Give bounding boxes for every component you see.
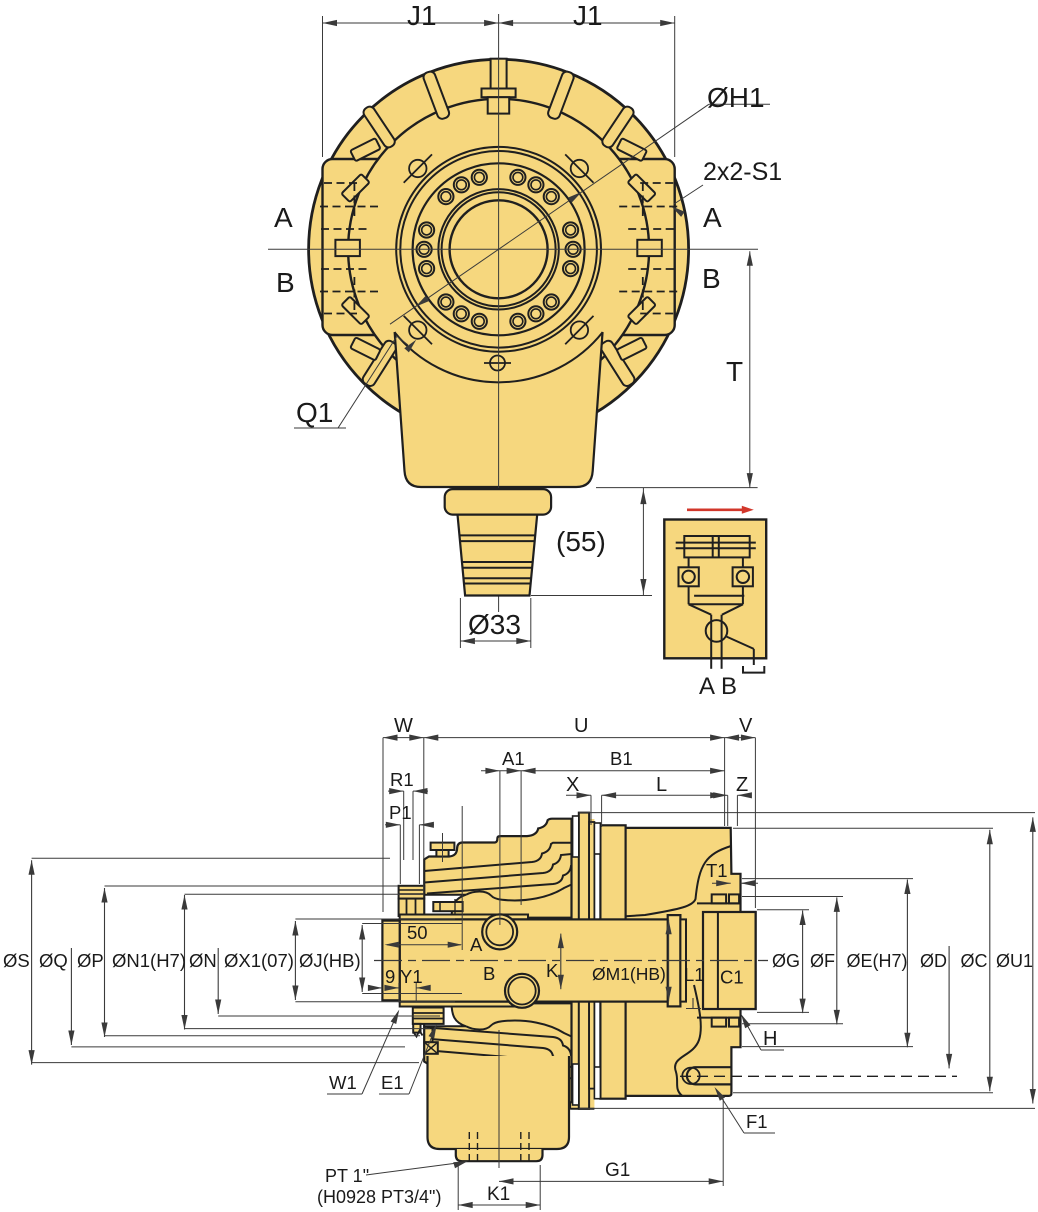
svg-text:ØN: ØN — [189, 950, 217, 971]
svg-text:H: H — [763, 1028, 777, 1050]
svg-text:B: B — [483, 963, 495, 984]
svg-text:ØX1(07): ØX1(07) — [224, 950, 294, 971]
svg-text:W: W — [394, 715, 413, 737]
svg-text:B: B — [276, 267, 295, 298]
svg-text:G1: G1 — [605, 1160, 630, 1181]
svg-text:U: U — [574, 715, 588, 737]
svg-text:Z: Z — [736, 774, 748, 796]
svg-text:P1: P1 — [389, 802, 412, 823]
svg-text:K1: K1 — [487, 1184, 510, 1205]
svg-text:L: L — [656, 774, 667, 796]
svg-text:A: A — [703, 202, 722, 233]
svg-text:W1: W1 — [329, 1072, 357, 1093]
svg-text:Y1: Y1 — [400, 966, 423, 987]
svg-text:E1: E1 — [381, 1072, 404, 1093]
svg-text:ØS: ØS — [3, 950, 30, 971]
svg-text:J1: J1 — [407, 0, 437, 31]
svg-text:K: K — [546, 960, 559, 981]
svg-text:ØP: ØP — [77, 950, 104, 971]
svg-text:ØH1: ØH1 — [707, 82, 765, 113]
svg-text:9: 9 — [385, 966, 395, 987]
svg-text:ØF: ØF — [810, 951, 835, 971]
svg-text:ØU1: ØU1 — [996, 951, 1033, 971]
svg-text:B1: B1 — [610, 748, 633, 769]
svg-text:ØE(H7): ØE(H7) — [847, 951, 908, 971]
svg-text:A1: A1 — [502, 748, 525, 769]
svg-text:ØD: ØD — [920, 951, 947, 971]
svg-text:X: X — [566, 774, 579, 796]
svg-text:ØJ(HB): ØJ(HB) — [299, 950, 361, 971]
svg-text:T1: T1 — [706, 860, 728, 881]
svg-text:(55): (55) — [556, 526, 606, 557]
svg-text:L1: L1 — [684, 964, 705, 985]
svg-text:2x2-S1: 2x2-S1 — [703, 158, 782, 186]
svg-text:ØM1(HB): ØM1(HB) — [592, 964, 666, 984]
svg-text:Ø33: Ø33 — [468, 609, 521, 640]
svg-text:ØC: ØC — [961, 951, 988, 971]
svg-text:T: T — [726, 356, 743, 387]
svg-text:A: A — [274, 202, 293, 233]
svg-text:50: 50 — [407, 922, 428, 943]
svg-text:A: A — [470, 934, 483, 955]
svg-text:A: A — [699, 673, 715, 700]
svg-text:PT 1": PT 1" — [325, 1166, 369, 1186]
svg-text:J1: J1 — [573, 0, 603, 31]
svg-text:V: V — [739, 715, 753, 737]
svg-text:ØQ: ØQ — [39, 950, 68, 971]
svg-text:R1: R1 — [390, 769, 414, 790]
svg-text:Q1: Q1 — [296, 397, 333, 428]
svg-text:B: B — [702, 263, 721, 294]
svg-text:F1: F1 — [746, 1111, 768, 1132]
svg-text:ØG: ØG — [772, 951, 800, 971]
svg-text:B: B — [721, 673, 737, 700]
svg-text:(H0928 PT3/4"): (H0928 PT3/4") — [317, 1187, 441, 1207]
svg-text:C1: C1 — [720, 967, 744, 988]
svg-text:ØN1(H7): ØN1(H7) — [112, 950, 186, 971]
